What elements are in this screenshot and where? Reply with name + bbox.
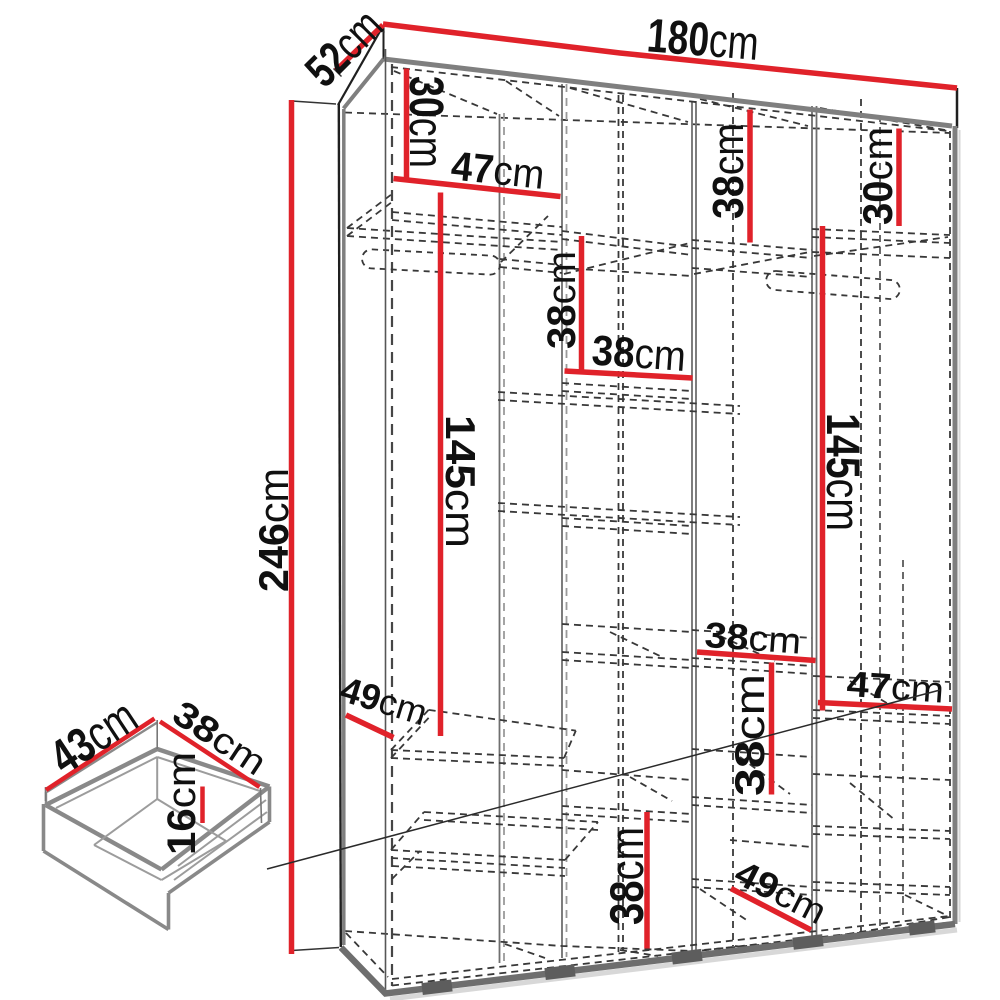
svg-text:38cm: 38cm <box>539 251 584 349</box>
svg-text:49cm: 49cm <box>336 668 433 733</box>
svg-text:16cm: 16cm <box>159 752 204 855</box>
svg-text:30cm: 30cm <box>854 127 901 225</box>
svg-text:52cm: 52cm <box>295 0 393 97</box>
svg-text:47cm: 47cm <box>845 663 945 711</box>
svg-text:30cm: 30cm <box>399 76 453 168</box>
svg-text:246cm: 246cm <box>250 468 297 592</box>
svg-text:145cm: 145cm <box>437 415 484 548</box>
svg-text:180cm: 180cm <box>645 9 761 71</box>
svg-text:38cm: 38cm <box>703 614 802 662</box>
svg-text:145cm: 145cm <box>816 413 869 531</box>
svg-text:49cm: 49cm <box>728 852 833 932</box>
svg-text:38cm: 38cm <box>590 326 687 379</box>
svg-text:38cm: 38cm <box>726 674 773 796</box>
svg-text:47cm: 47cm <box>449 142 547 198</box>
svg-text:38cm: 38cm <box>705 123 753 219</box>
svg-text:38cm: 38cm <box>601 827 654 925</box>
